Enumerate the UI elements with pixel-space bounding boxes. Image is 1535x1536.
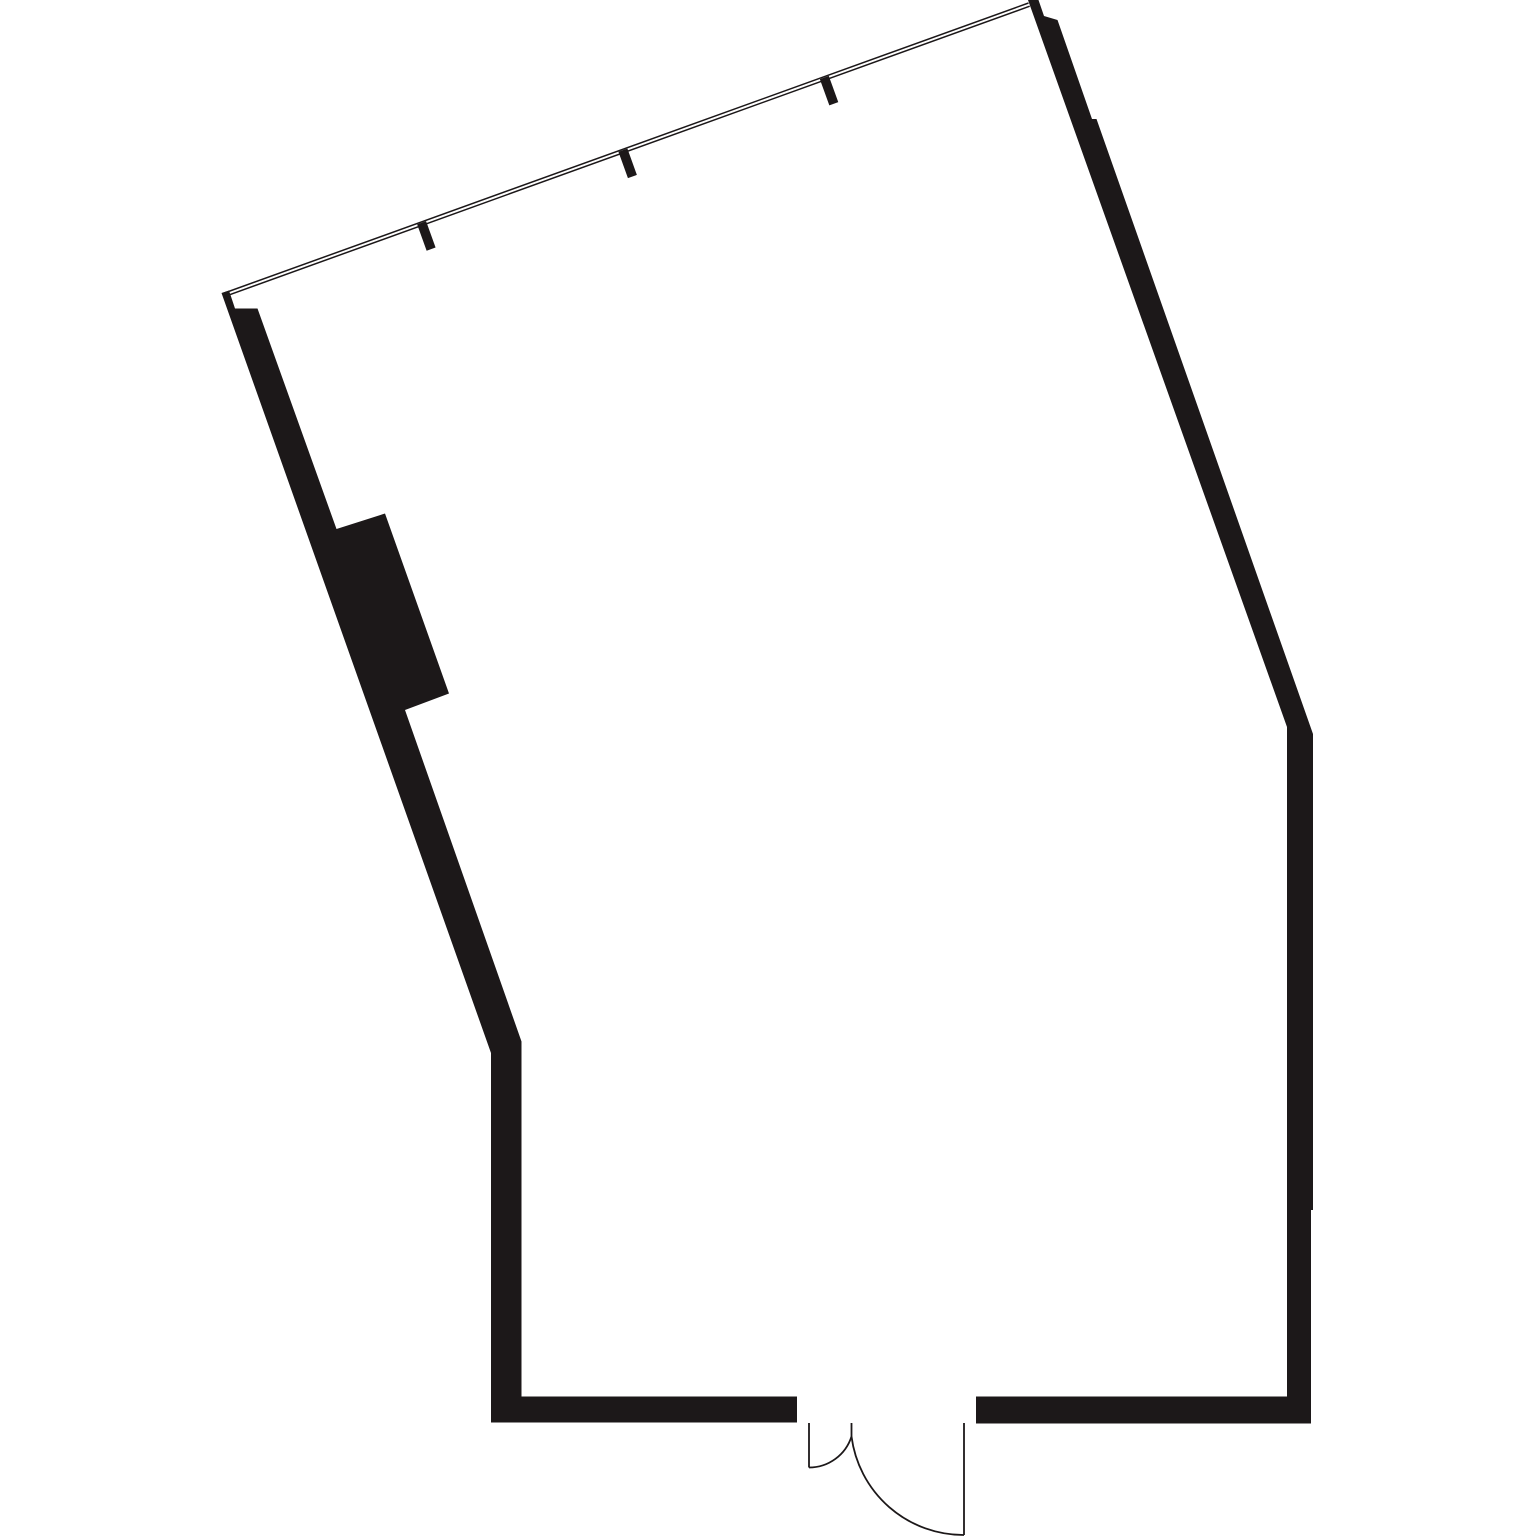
window-group <box>223 3 1030 297</box>
floor-plan-svg <box>0 0 1535 1536</box>
window-glazing-outer-line <box>223 3 1029 294</box>
door-swing-arc-left <box>809 1437 852 1468</box>
window-mullion-2 <box>623 150 633 176</box>
door-group <box>809 1423 964 1535</box>
window-mullion-3 <box>824 78 834 104</box>
left-wall-with-column <box>222 291 798 1423</box>
floor-plan-canvas <box>0 0 1535 1536</box>
window-mullion-1 <box>422 223 432 249</box>
door-swing-arc-right <box>852 1437 965 1536</box>
walls-group <box>222 0 1314 1424</box>
right-wall-and-bottom-right-wall <box>976 0 1313 1424</box>
